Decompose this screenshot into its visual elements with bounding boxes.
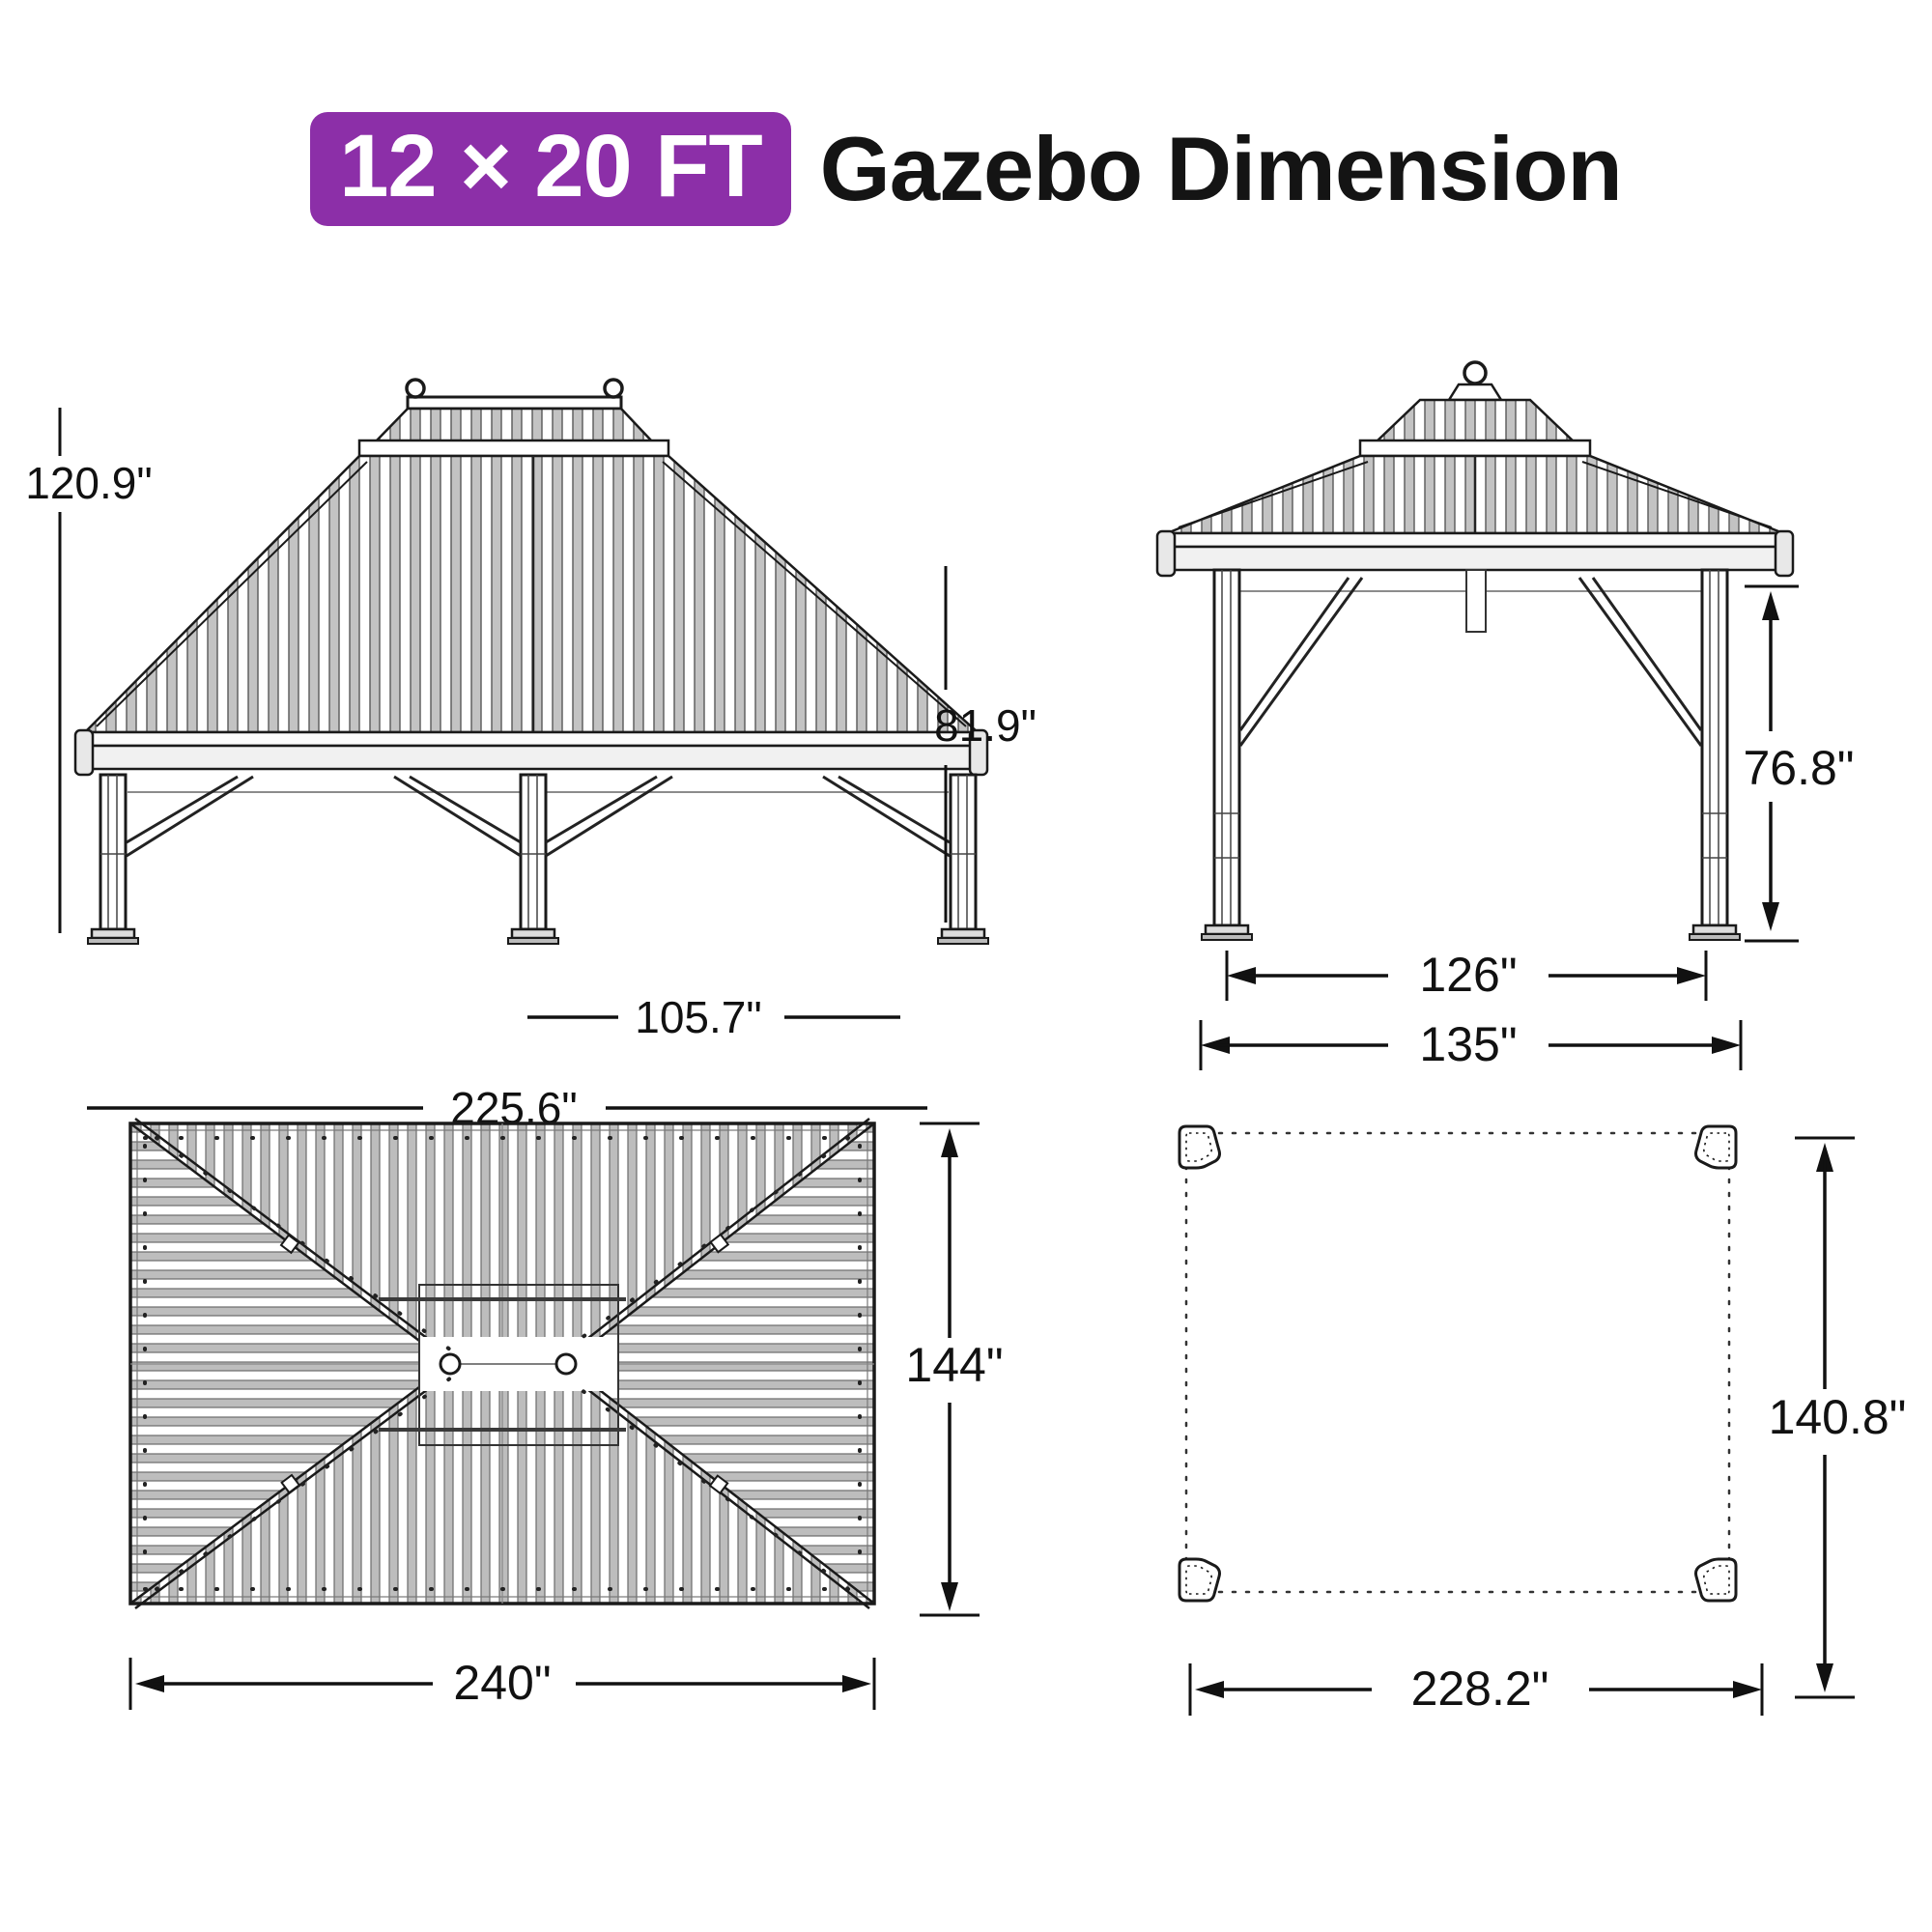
ridge-cap: [408, 397, 621, 409]
dim-label: 120.9": [25, 458, 152, 508]
dim-label: 126": [1419, 948, 1517, 1002]
gazebo-dimension-sheet: 12 × 20 FT Gazebo Dimension: [0, 0, 1932, 1932]
dim-side-total-width: 135": [1201, 1017, 1741, 1071]
hanging-hook-icon: [407, 380, 424, 397]
dim-footprint-width: 228.2": [1190, 1662, 1762, 1716]
eave-beam: [75, 730, 987, 775]
hanging-hook-icon: [605, 380, 622, 397]
dim-label: 140.8": [1769, 1390, 1907, 1444]
post: [1690, 570, 1740, 940]
dim-label: 228.2": [1411, 1662, 1549, 1716]
dim-label: 81.9": [934, 700, 1037, 751]
dim-label: 76.8": [1743, 741, 1854, 795]
dim-front-post-spacing: 105.7": [527, 992, 900, 1042]
dim-label: 144": [905, 1338, 1003, 1392]
base-plate: [1179, 1559, 1220, 1601]
dim-roof-depth: 144": [905, 1123, 1003, 1615]
diagram-canvas: 120.9" 81.9" 105.7" 225.6": [0, 0, 1932, 1932]
upper-roof-molding: [359, 440, 668, 456]
dim-front-total-height: 120.9": [25, 408, 152, 933]
dim-side-post-spacing: 126": [1227, 948, 1706, 1002]
dim-label: 105.7": [635, 992, 761, 1042]
side-elevation-view: 76.8" 126" 135": [1157, 362, 1855, 1071]
upper-roof-molding: [1360, 440, 1590, 456]
dim-footprint-depth: 140.8": [1769, 1138, 1907, 1697]
upper-roof-tier: [1376, 400, 1575, 442]
post: [88, 775, 138, 944]
post: [1202, 570, 1252, 940]
base-plate: [1179, 1126, 1220, 1168]
base-plate: [1696, 1559, 1737, 1601]
finial-ring-icon: [1464, 362, 1486, 384]
main-roof: [85, 456, 978, 732]
front-elevation-view: 120.9" 81.9" 105.7" 225.6": [25, 380, 1037, 1133]
post: [508, 775, 558, 944]
roof-plan-view: 144" 240": [130, 1119, 1004, 1710]
dim-label: 240": [453, 1656, 551, 1710]
dim-side-post-height: 76.8": [1743, 586, 1854, 941]
base-plate: [1696, 1126, 1737, 1168]
upper-roof-tier: [375, 409, 653, 442]
finial-hub-icon: [556, 1354, 576, 1374]
center-post-stub: [1466, 570, 1486, 632]
footprint-outline: [1186, 1133, 1729, 1592]
dim-roof-width: 240": [130, 1656, 874, 1710]
dim-label: 135": [1419, 1017, 1517, 1071]
footprint-view: 140.8" 228.2": [1179, 1126, 1906, 1716]
finial-hub-icon: [440, 1354, 460, 1374]
finial-cap: [1449, 384, 1501, 400]
